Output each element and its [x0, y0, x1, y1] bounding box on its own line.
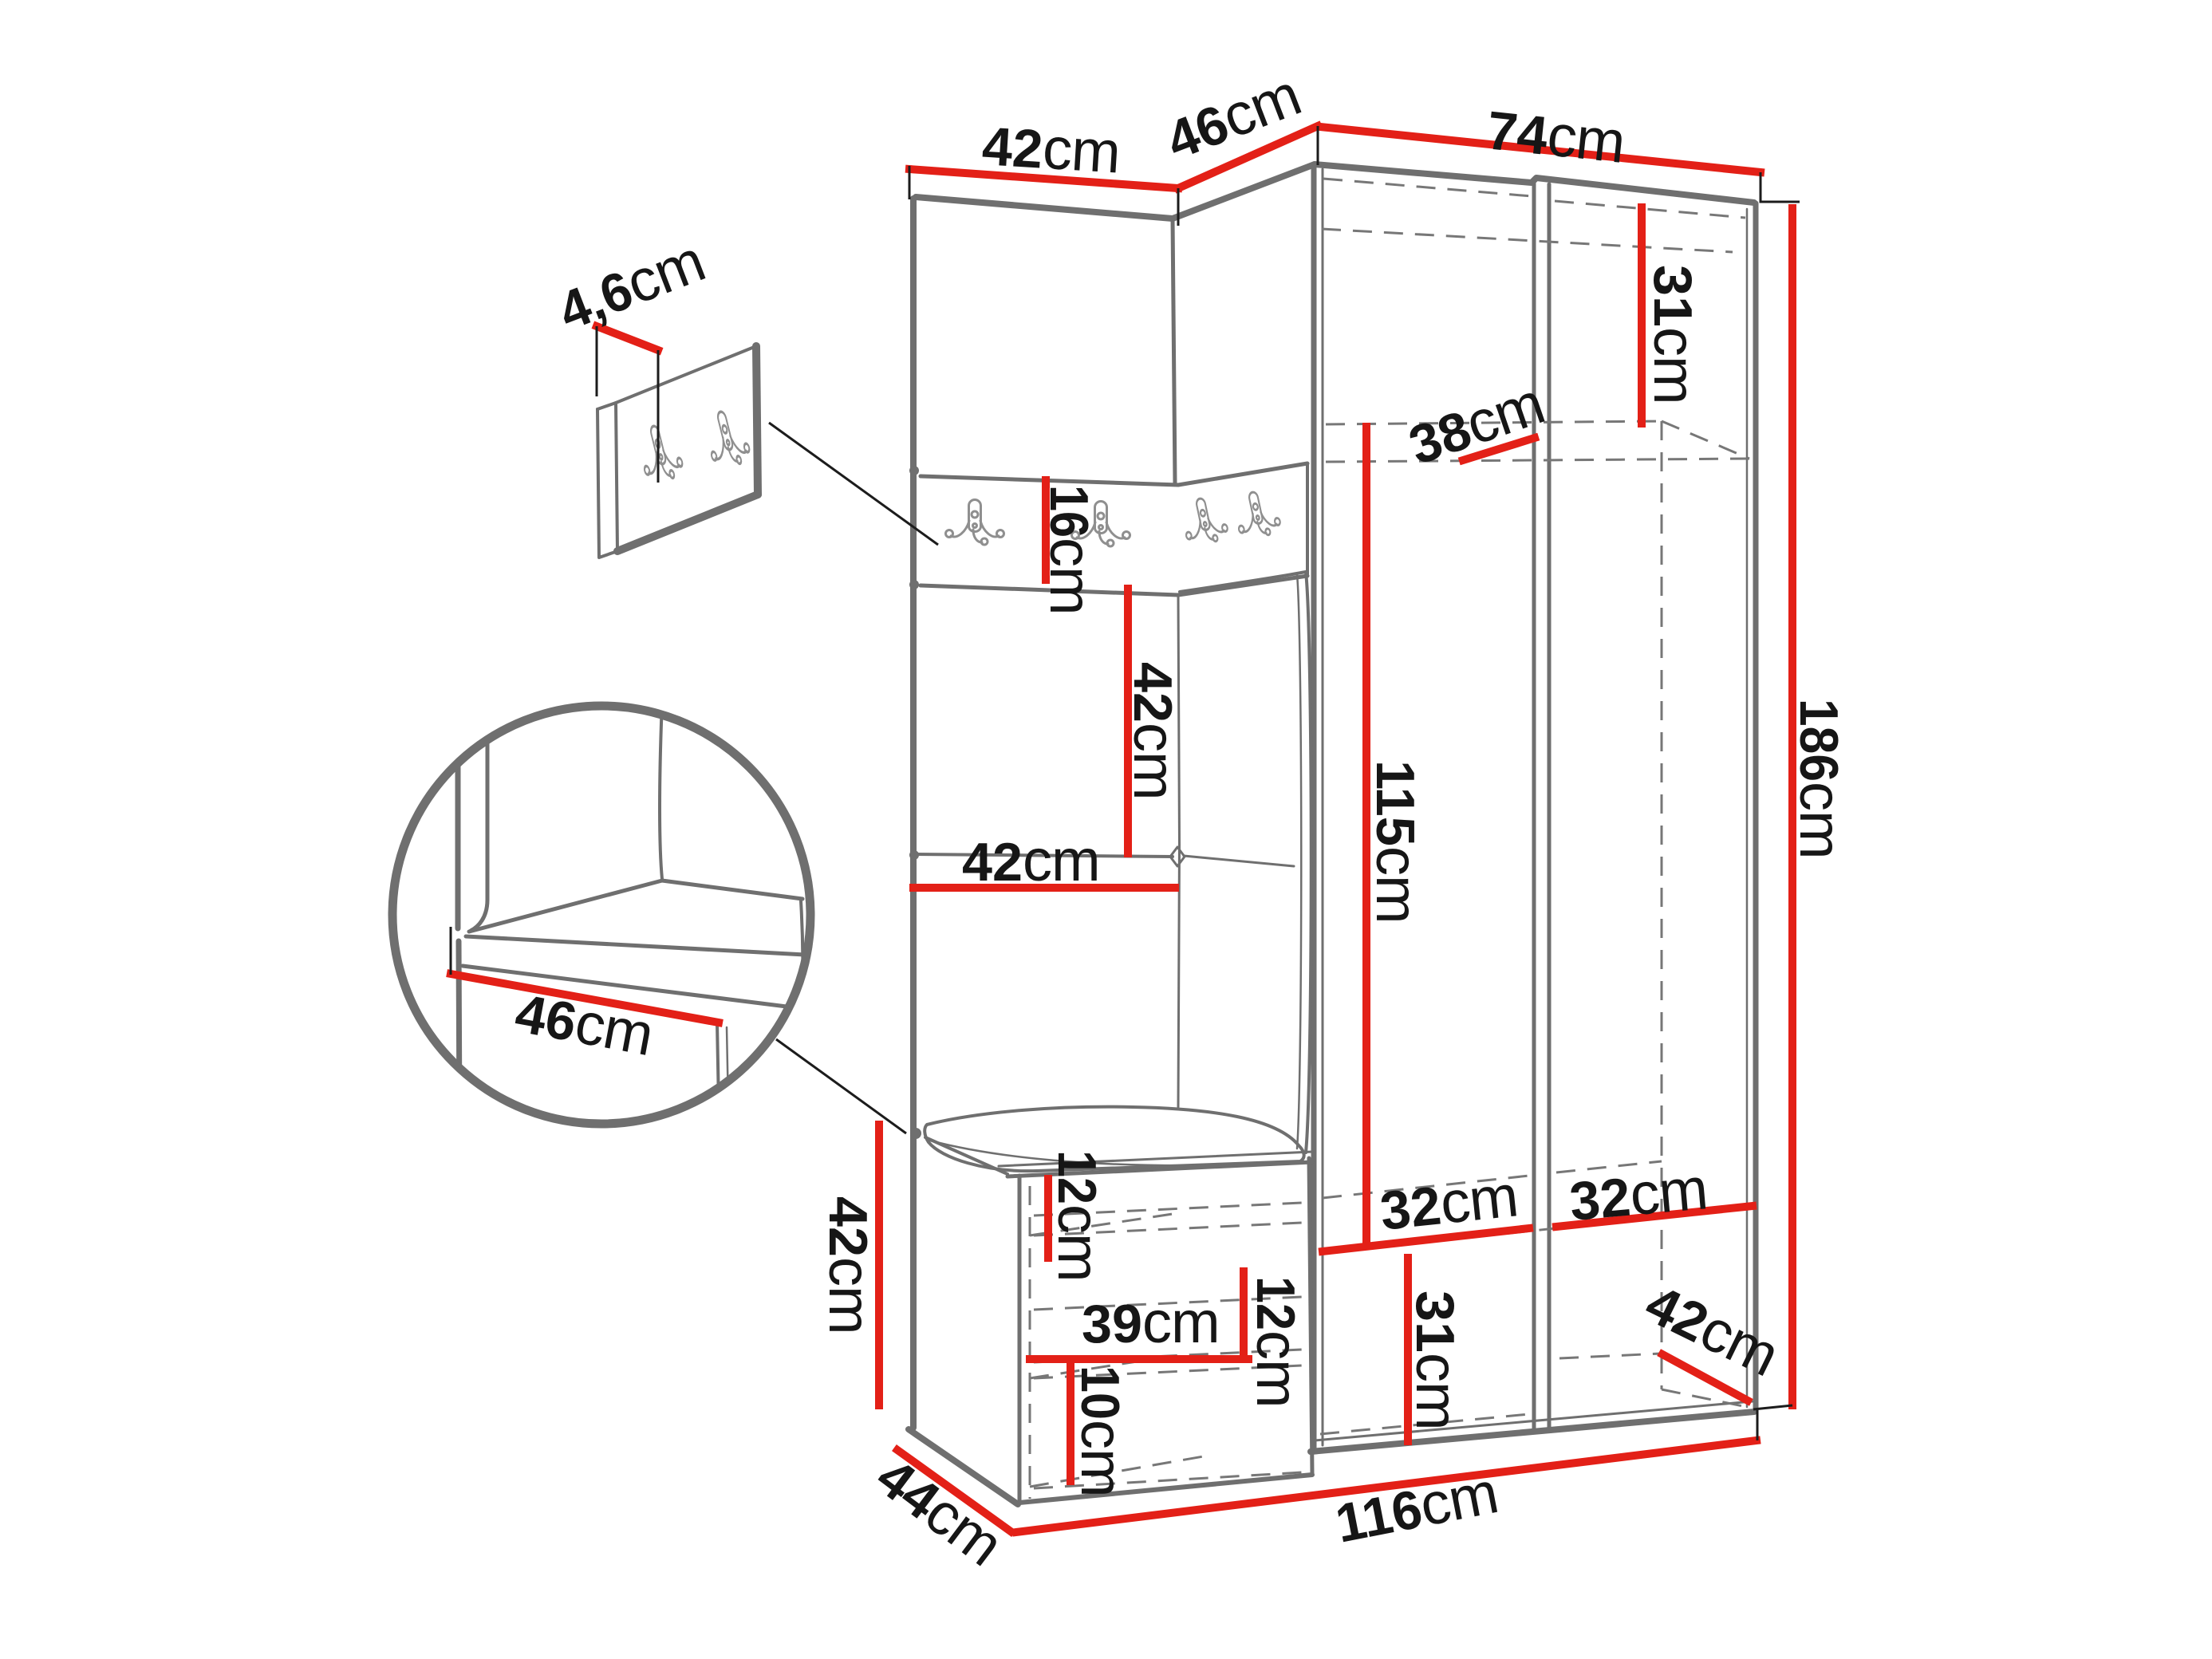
svg-text:42cm: 42cm: [817, 1196, 883, 1334]
svg-text:12cm: 12cm: [1244, 1276, 1311, 1408]
svg-text:31cm: 31cm: [1404, 1291, 1470, 1430]
svg-text:42cm: 42cm: [962, 827, 1100, 893]
svg-text:10cm: 10cm: [1069, 1365, 1135, 1497]
svg-text:12cm: 12cm: [1046, 1150, 1112, 1282]
svg-text:39cm: 39cm: [1082, 1289, 1220, 1355]
svg-text:42cm: 42cm: [980, 111, 1122, 185]
svg-text:16cm: 16cm: [1038, 485, 1104, 615]
svg-text:115cm: 115cm: [1364, 760, 1430, 924]
svg-text:31cm: 31cm: [1642, 265, 1708, 404]
svg-text:186cm: 186cm: [1788, 699, 1854, 859]
svg-text:42cm: 42cm: [1122, 662, 1188, 800]
